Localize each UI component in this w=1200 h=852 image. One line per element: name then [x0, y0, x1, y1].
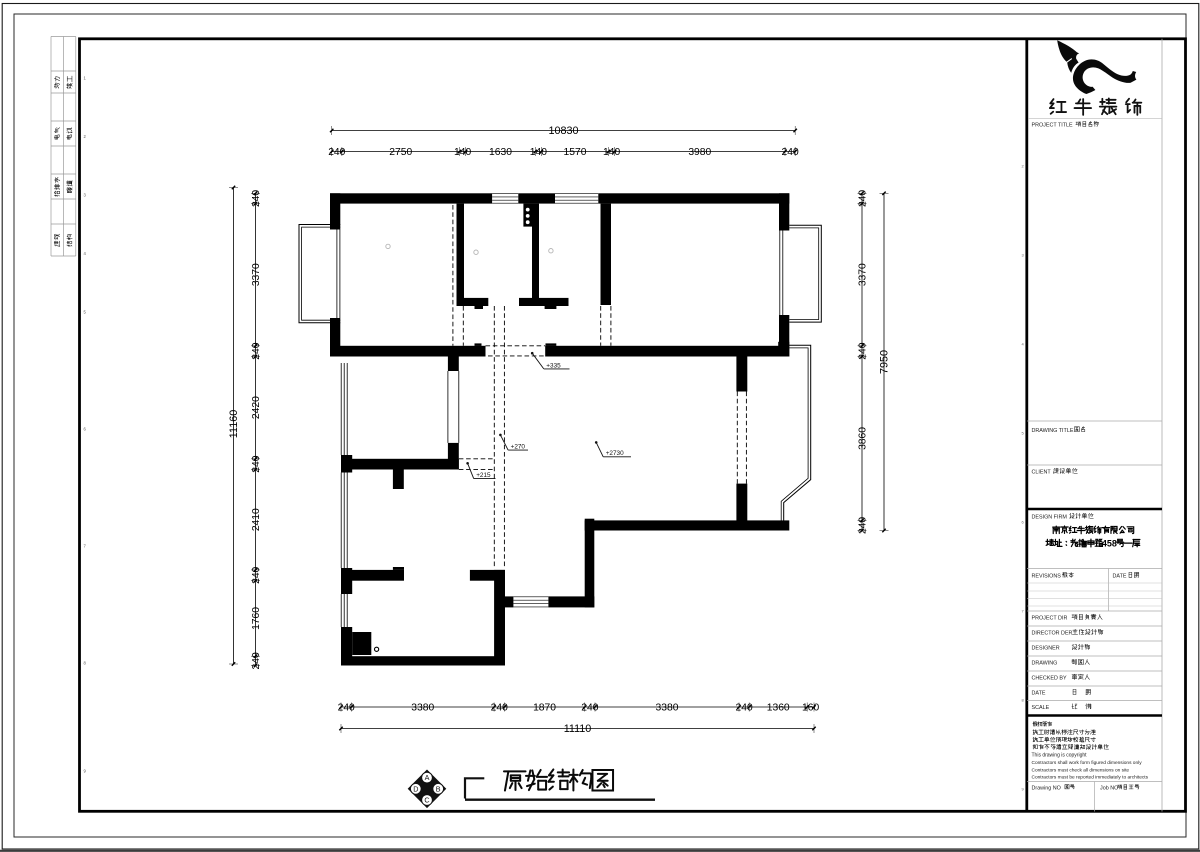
svg-text:1570: 1570	[564, 147, 587, 158]
svg-text:10830: 10830	[548, 125, 578, 137]
svg-text:PROJECT TITLE: PROJECT TITLE	[1032, 123, 1074, 129]
svg-text:SCALE: SCALE	[1032, 705, 1050, 711]
svg-text:240: 240	[782, 147, 799, 158]
svg-text:3380: 3380	[411, 703, 434, 714]
svg-text:240: 240	[736, 703, 753, 714]
svg-text:CLIENT: CLIENT	[1032, 470, 1052, 476]
svg-text:3860: 3860	[858, 427, 869, 450]
svg-text:1760: 1760	[251, 607, 262, 630]
svg-text:140: 140	[530, 147, 547, 158]
svg-text:Contractors must be reported i: Contractors must be reported immediately…	[1032, 774, 1149, 780]
svg-text:DATE: DATE	[1113, 574, 1127, 580]
svg-text:DRAWING TITLE: DRAWING TITLE	[1032, 428, 1074, 434]
svg-text:11110: 11110	[564, 723, 592, 735]
svg-text:458: 458	[1102, 539, 1117, 549]
svg-text:+215: +215	[476, 472, 491, 479]
svg-text:A: A	[425, 773, 430, 782]
svg-text:C: C	[424, 796, 429, 805]
svg-text:PROJECT DIR: PROJECT DIR	[1032, 615, 1068, 621]
svg-text:CHECKED BY: CHECKED BY	[1032, 675, 1067, 681]
svg-text:240: 240	[251, 455, 262, 472]
svg-text:DRAWING: DRAWING	[1032, 660, 1058, 666]
svg-text:3980: 3980	[688, 147, 711, 158]
svg-text:240: 240	[858, 517, 869, 534]
svg-text:REVISIONS: REVISIONS	[1032, 574, 1062, 580]
svg-text:2420: 2420	[251, 396, 262, 419]
svg-text:11160: 11160	[228, 410, 240, 438]
svg-text:DIRECTOR DER: DIRECTOR DER	[1032, 630, 1073, 636]
svg-text:240: 240	[251, 190, 262, 207]
svg-text:+2730: +2730	[606, 450, 624, 457]
svg-text:DESIGN FIRM: DESIGN FIRM	[1032, 515, 1068, 521]
svg-text:240: 240	[581, 703, 598, 714]
svg-text:3370: 3370	[251, 263, 262, 286]
svg-text:B: B	[436, 784, 441, 793]
svg-text:DATE: DATE	[1032, 690, 1046, 696]
svg-text:240: 240	[338, 703, 355, 714]
svg-text:240: 240	[251, 342, 262, 359]
svg-text:1360: 1360	[767, 703, 790, 714]
svg-text:3370: 3370	[858, 263, 869, 286]
svg-text:D: D	[413, 784, 418, 793]
svg-text:Contractors must check all dim: Contractors must check all dimensions on…	[1032, 767, 1130, 773]
svg-text:240: 240	[251, 566, 262, 583]
svg-text:This drawing is copyright: This drawing is copyright	[1032, 753, 1088, 759]
svg-text:3380: 3380	[656, 703, 679, 714]
svg-text:1630: 1630	[489, 147, 512, 158]
svg-text:1870: 1870	[533, 703, 556, 714]
svg-text:Job NO: Job NO	[1100, 786, 1118, 792]
svg-text:Contractors shall work form fi: Contractors shall work form figured dime…	[1032, 760, 1143, 766]
svg-text:240: 240	[251, 652, 262, 669]
svg-text:+335: +335	[546, 362, 561, 369]
svg-text:2410: 2410	[251, 508, 262, 531]
svg-text:7950: 7950	[879, 350, 891, 374]
svg-text:240: 240	[491, 703, 508, 714]
svg-text:140: 140	[454, 147, 471, 158]
svg-text:2750: 2750	[389, 147, 412, 158]
svg-text:Drawing NO: Drawing NO	[1032, 786, 1061, 792]
svg-text:160: 160	[802, 703, 819, 714]
svg-text:+270: +270	[511, 444, 526, 451]
svg-text:240: 240	[858, 342, 869, 359]
svg-text:140: 140	[603, 147, 620, 158]
svg-text:240: 240	[328, 147, 345, 158]
svg-text:DESIGNER: DESIGNER	[1032, 645, 1060, 651]
svg-text:240: 240	[858, 190, 869, 207]
